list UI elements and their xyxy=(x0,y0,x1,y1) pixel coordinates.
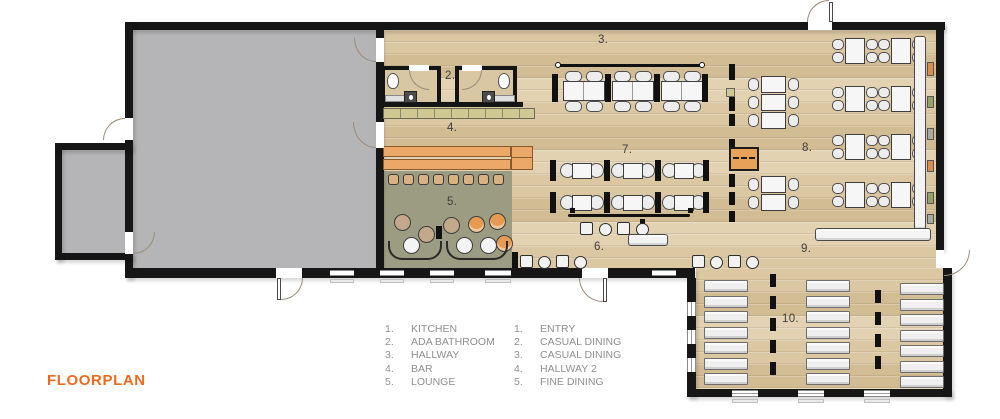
chair xyxy=(832,87,844,98)
window xyxy=(652,270,676,276)
dining-table xyxy=(891,38,911,64)
legend-label: BAR xyxy=(411,363,433,375)
chair xyxy=(866,135,878,146)
chair xyxy=(748,96,759,109)
dining-table xyxy=(891,182,911,208)
legend-item: 4.HALLWAY 2 xyxy=(514,362,621,375)
dining-table-4top xyxy=(832,132,878,162)
window xyxy=(430,270,454,276)
partition xyxy=(550,192,556,213)
bench xyxy=(815,228,931,241)
banquette-cushion xyxy=(927,62,934,76)
partition xyxy=(770,362,776,375)
table-divider xyxy=(632,82,633,100)
chair xyxy=(635,101,652,112)
bar-stool xyxy=(448,174,459,185)
booth-bench xyxy=(806,327,850,339)
dining-table xyxy=(623,163,643,179)
legend-number: 3. xyxy=(514,349,540,361)
cabinet xyxy=(726,88,735,97)
bar-stool xyxy=(418,174,429,185)
booth-bench xyxy=(704,327,748,339)
dining-table-group xyxy=(611,71,655,112)
booth-bench xyxy=(900,345,944,357)
chair xyxy=(878,100,890,111)
chair xyxy=(878,196,890,207)
booth-bench xyxy=(900,376,944,388)
dining-table xyxy=(623,195,643,211)
chair xyxy=(878,148,890,159)
chair xyxy=(878,183,890,194)
railing xyxy=(568,214,690,217)
legend-item: 2.ADA BATHROOM xyxy=(385,335,495,348)
partition xyxy=(654,74,660,102)
legend-number: 2. xyxy=(514,336,540,348)
bar-stool xyxy=(403,174,414,185)
booth-bench xyxy=(806,342,850,354)
banquette-cushion xyxy=(927,192,934,204)
chair xyxy=(748,178,759,191)
chair xyxy=(684,101,701,112)
legend-label: ADA BATHROOM xyxy=(411,336,495,348)
chair xyxy=(788,178,799,191)
furniture-layer xyxy=(0,0,1000,419)
booth-bench xyxy=(806,311,850,323)
partition xyxy=(875,356,881,369)
legend-number: 1. xyxy=(514,323,540,335)
dining-table xyxy=(845,38,865,64)
window-sill xyxy=(430,279,454,283)
chair xyxy=(788,78,799,91)
legend-item: 1.KITCHEN xyxy=(385,322,495,335)
legend-label: HALLWAY xyxy=(411,349,459,361)
bar-stool xyxy=(478,174,489,185)
window xyxy=(485,270,511,276)
partition xyxy=(655,160,661,181)
railing-post xyxy=(699,62,705,68)
window-sill xyxy=(732,399,758,403)
dining-table xyxy=(845,182,865,208)
wait-station xyxy=(729,147,759,171)
bench xyxy=(628,234,668,246)
bar-stool xyxy=(433,174,444,185)
lounge-sofa xyxy=(388,241,442,260)
dining-table-group xyxy=(660,71,704,112)
bar-stool xyxy=(388,174,399,185)
chair xyxy=(878,39,890,50)
toilet xyxy=(498,73,510,89)
chair xyxy=(788,114,799,127)
booth-bench xyxy=(704,311,748,323)
dining-table xyxy=(563,81,605,101)
partition xyxy=(604,160,610,181)
chair xyxy=(586,101,603,112)
dining-table xyxy=(612,81,654,101)
table-divider xyxy=(583,82,584,100)
partition xyxy=(436,226,442,239)
booth-bench xyxy=(806,358,850,370)
bar-stool xyxy=(463,174,474,185)
banquette-cushion xyxy=(927,96,934,108)
lounge-chair xyxy=(468,216,485,233)
legend-item: 5.LOUNGE xyxy=(385,376,495,389)
legend-label: CASUAL DINING xyxy=(540,336,621,348)
bench-seat xyxy=(520,255,533,268)
dining-table xyxy=(891,134,911,160)
partition xyxy=(875,334,881,347)
dining-table xyxy=(891,86,911,112)
dining-banquette xyxy=(748,76,799,130)
partition xyxy=(552,74,558,102)
booth-bench xyxy=(900,314,944,326)
bench xyxy=(914,36,926,230)
lounge-chair xyxy=(394,214,411,231)
dining-table xyxy=(761,112,786,129)
chair xyxy=(565,101,582,112)
legend-column-right: 1.ENTRY 2.CASUAL DINING 3.CASUAL DINING … xyxy=(514,322,621,389)
booth-bench xyxy=(806,373,850,385)
lounge-sofa xyxy=(446,241,508,260)
chair xyxy=(866,87,878,98)
legend-item: 4.BAR xyxy=(385,362,495,375)
window xyxy=(687,302,696,316)
chair xyxy=(866,196,878,207)
chair xyxy=(748,196,759,209)
legend-label: KITCHEN xyxy=(411,323,457,335)
partition xyxy=(770,274,776,287)
chair xyxy=(866,100,878,111)
bench-seat xyxy=(617,222,630,235)
booth-bench xyxy=(704,373,748,385)
banquette-cushion xyxy=(927,214,934,224)
bench-seat xyxy=(580,222,593,235)
partition xyxy=(729,64,735,80)
banquette-cushion xyxy=(927,128,934,140)
window xyxy=(380,270,404,276)
window-sill xyxy=(798,399,824,403)
partition xyxy=(703,160,709,181)
window xyxy=(732,390,758,397)
legend-number: 5. xyxy=(514,376,540,388)
dining-table xyxy=(761,194,786,211)
page-title: FLOORPLAN xyxy=(47,372,146,389)
bar-stool xyxy=(493,174,504,185)
dining-table-2top xyxy=(560,163,604,179)
bench-seat xyxy=(728,255,741,268)
partition xyxy=(605,74,611,102)
legend-item: 3.HALLWAY xyxy=(385,349,495,362)
legend-label: LOUNGE xyxy=(411,376,455,388)
booth-bench xyxy=(900,283,944,295)
chair xyxy=(878,135,890,146)
floorplan-canvas: 2. 3. 4. 5. 6. 7. 8. 9. 10. FLOORPLAN 1.… xyxy=(0,0,1000,419)
chair xyxy=(866,52,878,63)
chair xyxy=(832,52,844,63)
legend-number: 2. xyxy=(385,336,411,348)
dining-table xyxy=(761,94,786,111)
dining-table-4top xyxy=(832,36,878,66)
legend-item: 3.CASUAL DINING xyxy=(514,349,621,362)
dining-table-2top xyxy=(611,163,655,179)
window xyxy=(687,330,696,344)
chair xyxy=(663,101,680,112)
chair xyxy=(788,96,799,109)
booth-bench xyxy=(806,280,850,292)
dining-table xyxy=(572,195,592,211)
chair xyxy=(832,183,844,194)
chair xyxy=(866,148,878,159)
booth-bench xyxy=(704,280,748,292)
dining-table-2top xyxy=(662,163,706,179)
dining-table-2top xyxy=(662,195,706,211)
partition xyxy=(729,96,735,111)
railing-post xyxy=(555,62,561,68)
booth-bench xyxy=(704,358,748,370)
partition xyxy=(729,192,735,205)
dining-table xyxy=(761,176,786,193)
bench-seat xyxy=(746,256,759,269)
chair xyxy=(866,39,878,50)
chair xyxy=(614,101,631,112)
partition xyxy=(770,318,776,331)
partition xyxy=(604,192,610,213)
legend-label: FINE DINING xyxy=(540,376,604,388)
dining-table-4top xyxy=(832,84,878,114)
partition xyxy=(875,312,881,325)
window xyxy=(864,390,890,397)
booth-bench xyxy=(900,299,944,311)
partition xyxy=(770,296,776,309)
partition xyxy=(655,192,661,213)
booth-bench xyxy=(900,361,944,373)
partition xyxy=(729,114,735,126)
chair xyxy=(832,100,844,111)
bench-seat xyxy=(599,223,612,236)
partition xyxy=(729,211,735,222)
chair xyxy=(748,114,759,127)
dining-table-2top xyxy=(560,195,604,211)
sink xyxy=(404,91,417,103)
chair xyxy=(866,183,878,194)
window-sill xyxy=(380,279,404,283)
dining-banquette xyxy=(748,176,799,212)
partition xyxy=(770,340,776,353)
railing xyxy=(558,64,702,67)
legend-label: CASUAL DINING xyxy=(540,349,621,361)
table-divider xyxy=(681,82,682,100)
legend-item: 1.ENTRY xyxy=(514,322,621,335)
toilet xyxy=(387,73,399,89)
legend-item: 2.CASUAL DINING xyxy=(514,335,621,348)
bench-seat xyxy=(692,255,705,268)
lounge-chair xyxy=(489,213,506,230)
legend-label: HALLWAY 2 xyxy=(540,363,597,375)
legend-number: 5. xyxy=(385,376,411,388)
legend-column-left: 1.KITCHEN 2.ADA BATHROOM 3.HALLWAY 4.BAR… xyxy=(385,322,495,389)
legend-number: 4. xyxy=(514,363,540,375)
banquette-cushion xyxy=(927,160,934,172)
window-sill xyxy=(485,279,511,283)
dining-table-group xyxy=(562,71,606,112)
partition xyxy=(512,252,518,268)
dining-table xyxy=(674,163,694,179)
booth-bench xyxy=(704,296,748,308)
chair xyxy=(878,52,890,63)
legend-number: 4. xyxy=(385,363,411,375)
booth-bench xyxy=(704,342,748,354)
chair xyxy=(832,148,844,159)
dining-table xyxy=(661,81,703,101)
bench-seat xyxy=(710,256,723,269)
partition xyxy=(550,160,556,181)
chair xyxy=(832,135,844,146)
booth-bench xyxy=(900,330,944,342)
chair xyxy=(788,196,799,209)
legend-item: 5.FINE DINING xyxy=(514,376,621,389)
partition xyxy=(702,74,708,102)
sink xyxy=(482,91,495,103)
legend-number: 1. xyxy=(385,323,411,335)
railing-post xyxy=(688,208,693,213)
dining-table xyxy=(845,134,865,160)
dining-table xyxy=(761,76,786,93)
window-sill xyxy=(330,279,354,283)
dining-table-4top xyxy=(832,180,878,210)
chair xyxy=(878,87,890,98)
booth-bench xyxy=(806,296,850,308)
railing-post xyxy=(570,208,575,213)
chair xyxy=(832,39,844,50)
window xyxy=(798,390,824,397)
window xyxy=(687,358,696,372)
legend-number: 3. xyxy=(385,349,411,361)
bench-seat xyxy=(574,256,587,269)
chair xyxy=(748,78,759,91)
dining-table xyxy=(572,163,592,179)
dining-table-2top xyxy=(611,195,655,211)
dining-table xyxy=(845,86,865,112)
bench-seat xyxy=(556,255,569,268)
partition xyxy=(729,139,735,147)
bench-seat xyxy=(538,256,551,269)
legend-label: ENTRY xyxy=(540,323,575,335)
window-sill xyxy=(864,399,890,403)
partition xyxy=(729,174,735,187)
chair xyxy=(832,196,844,207)
lounge-chair xyxy=(443,217,460,234)
partition xyxy=(703,192,709,213)
window xyxy=(330,270,354,276)
partition xyxy=(875,290,881,303)
